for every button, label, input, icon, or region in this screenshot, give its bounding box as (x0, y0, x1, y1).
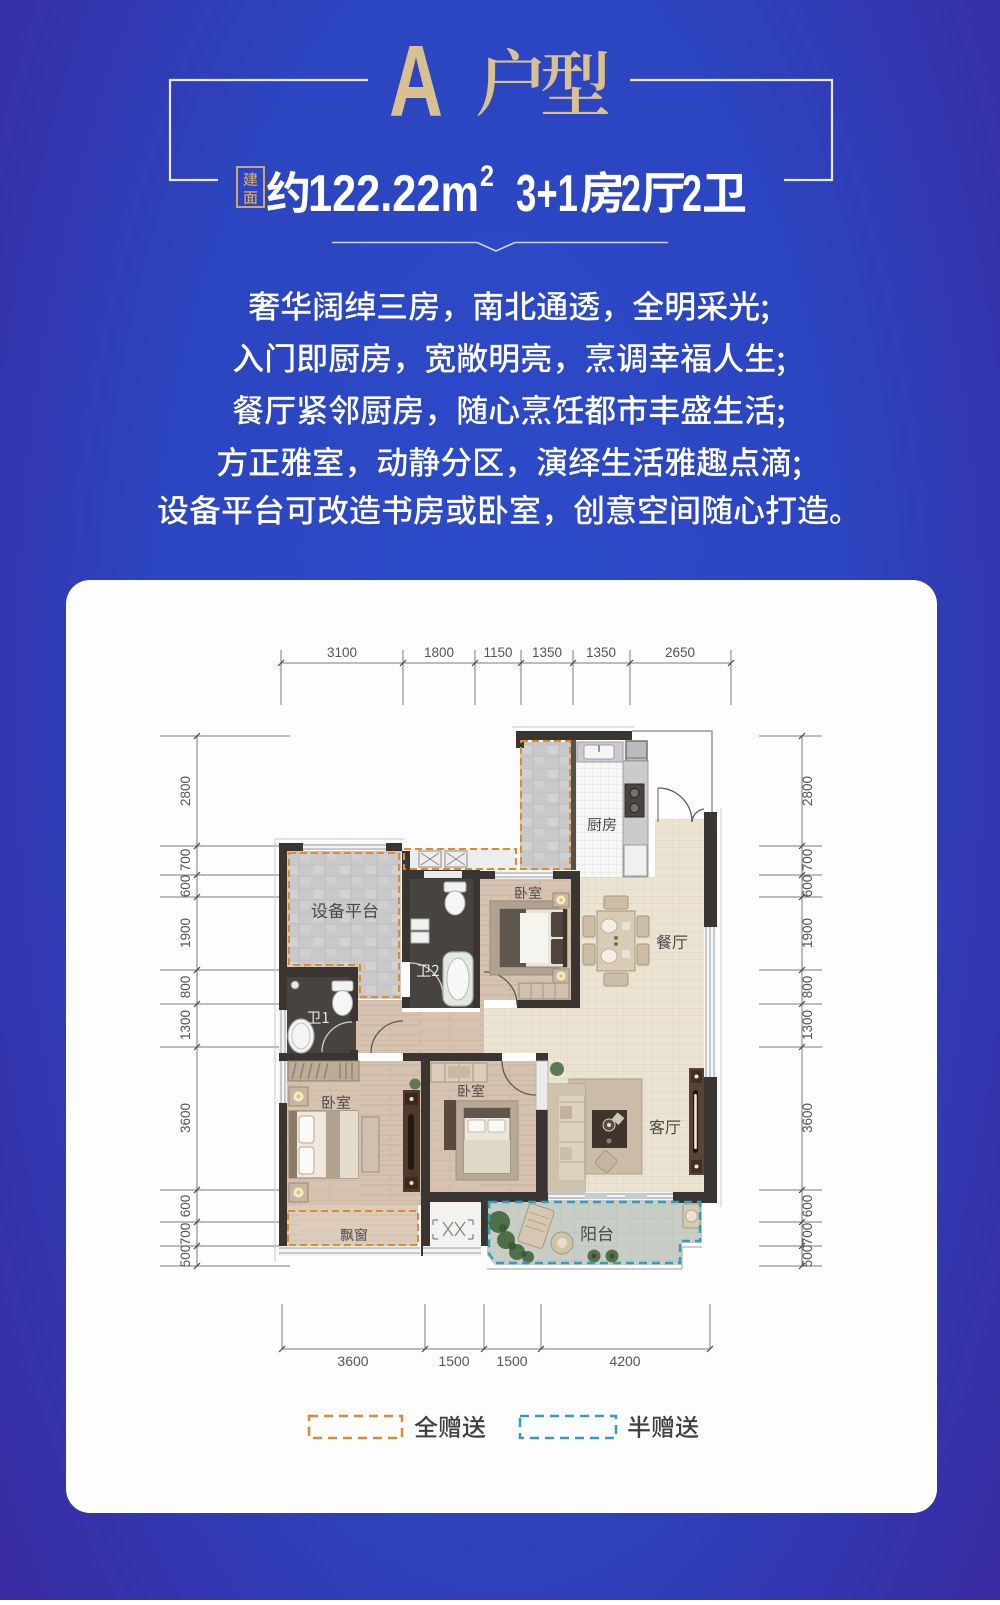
svg-text:2: 2 (480, 160, 494, 193)
svg-text:3600: 3600 (337, 1353, 368, 1369)
svg-text:1900: 1900 (178, 918, 193, 948)
svg-text:500: 500 (178, 1245, 193, 1268)
svg-text:1350: 1350 (532, 645, 562, 660)
svg-text:2650: 2650 (665, 645, 695, 660)
svg-text:2800: 2800 (800, 776, 815, 806)
svg-text:1500: 1500 (496, 1353, 527, 1369)
svg-text:600: 600 (800, 1195, 815, 1218)
svg-text:1900: 1900 (800, 918, 815, 948)
svg-text:600: 600 (800, 875, 815, 898)
svg-text:3+1: 3+1 (516, 165, 578, 223)
svg-text:800: 800 (800, 976, 815, 999)
svg-text:A: A (389, 26, 443, 138)
svg-text:700: 700 (178, 1223, 193, 1246)
svg-text:3600: 3600 (800, 1103, 815, 1133)
svg-text:2800: 2800 (178, 776, 193, 806)
svg-text:1500: 1500 (438, 1353, 469, 1369)
svg-text:700: 700 (800, 849, 815, 872)
svg-text:1150: 1150 (483, 645, 512, 660)
svg-text:1300: 1300 (800, 1010, 815, 1040)
svg-text:1350: 1350 (586, 645, 616, 660)
svg-text:700: 700 (178, 849, 193, 872)
svg-text:2: 2 (682, 165, 702, 223)
svg-text:500: 500 (800, 1245, 815, 1268)
svg-text:600: 600 (178, 875, 193, 898)
svg-text:1300: 1300 (178, 1010, 193, 1040)
svg-text:1800: 1800 (424, 645, 454, 660)
svg-text:600: 600 (178, 1195, 193, 1218)
svg-text:3100: 3100 (327, 645, 357, 660)
svg-text:800: 800 (178, 976, 193, 999)
svg-text:122.22m: 122.22m (308, 165, 479, 223)
svg-text:4200: 4200 (609, 1353, 640, 1369)
svg-text:700: 700 (800, 1223, 815, 1246)
svg-text:2: 2 (621, 165, 641, 223)
svg-text:3600: 3600 (178, 1103, 193, 1133)
